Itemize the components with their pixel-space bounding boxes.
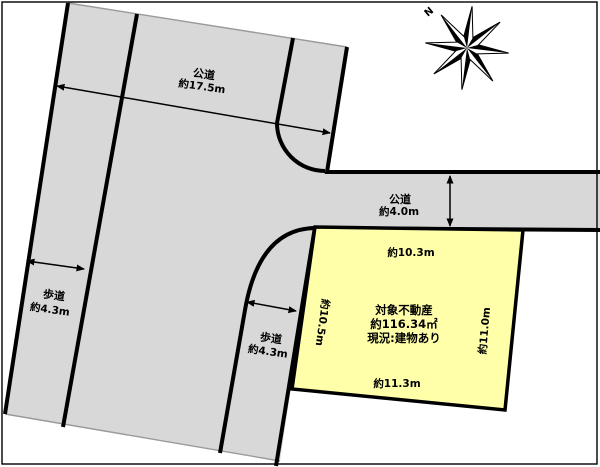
parcel-area: 約116.34㎡ [370,317,438,331]
parcel-status: 現況:建物あり [367,331,441,345]
parcel-edge-top-label: 約10.3m [387,246,434,259]
compass-north-label: N [423,5,436,19]
plot-map-canvas: 公道 約17.5m 歩道 約4.3m 歩道 約4.3m 公道 約4.0m 約10… [0,0,600,467]
parcel-edge-bottom-label: 約11.3m [373,377,420,390]
compass-rose [425,6,508,89]
compass-star-dark-halves [425,6,508,89]
right-road-name-label: 公道 [389,192,411,206]
right-road-width-label: 約4.0m [379,205,419,218]
land-plot-map: 公道 約17.5m 歩道 約4.3m 歩道 約4.3m 公道 約4.0m 約10… [0,0,600,467]
parcel-title: 対象不動産 [374,303,433,317]
